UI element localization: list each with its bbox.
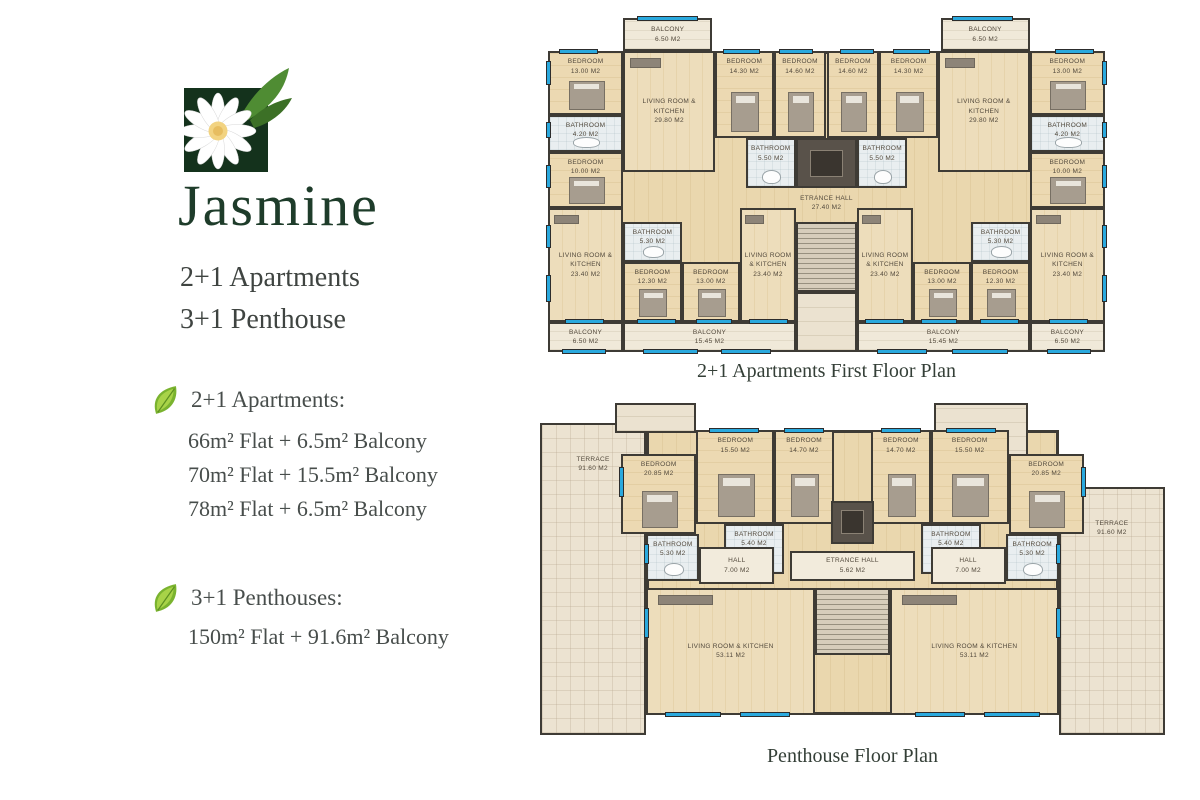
room-label: BALCONY6.50 M2 (650, 22, 685, 47)
room-label: BEDROOM20.85 M2 (1011, 457, 1082, 482)
bedroom-room: BEDROOM14.70 M2 (774, 430, 833, 524)
spec-item: 78m² Flat + 6.5m² Balcony (188, 492, 438, 526)
balcony-room: BALCONY15.45 M2 (857, 322, 1030, 352)
window (1049, 319, 1088, 324)
balcony-room: BALCONY6.50 M2 (1030, 322, 1105, 352)
room-label: BATHROOM5.40 M2 (923, 527, 978, 552)
living-room-kitchen-room: LIVING ROOM & KITCHEN29.80 M2 (623, 51, 715, 171)
room-label: LIVING ROOM & KITCHEN23.40 M2 (1032, 248, 1103, 282)
window (921, 319, 957, 324)
window (644, 608, 650, 638)
room-label: LIVING ROOM & KITCHEN23.40 M2 (742, 248, 794, 282)
bed-furniture (987, 289, 1015, 317)
bed-furniture (698, 289, 726, 317)
bedroom-room: BEDROOM13.00 M2 (1030, 51, 1105, 114)
window (644, 544, 650, 564)
window (637, 319, 676, 324)
living-room-kitchen-room: LIVING ROOM & KITCHEN29.80 M2 (938, 51, 1030, 171)
window (779, 49, 812, 54)
room-label: LIVING ROOM & KITCHEN29.80 M2 (625, 94, 713, 128)
room-label: LIVING ROOM & KITCHEN53.11 M2 (687, 639, 775, 664)
window (643, 349, 699, 354)
window (696, 319, 732, 324)
brand-subtitle-penthouse: 3+1 Penthouse (180, 304, 346, 336)
spec-heading-apartments-label: 2+1 Apartments: (191, 387, 345, 413)
window (865, 319, 904, 324)
bath-fixture (664, 563, 684, 576)
window (984, 712, 1040, 717)
room-label: BEDROOM10.00 M2 (550, 155, 621, 180)
room-label: LIVING ROOM & KITCHEN29.80 M2 (940, 94, 1028, 128)
window (1056, 608, 1062, 638)
room-label: BEDROOM20.85 M2 (623, 457, 694, 482)
room-label: BATHROOM5.50 M2 (748, 141, 794, 166)
room-label: BATHROOM5.30 M2 (625, 225, 679, 250)
room-label: BATHROOM5.50 M2 (859, 141, 905, 166)
window (721, 349, 771, 354)
brand-name: Jasmine (178, 172, 379, 239)
bed-furniture (642, 491, 678, 528)
room-label: BEDROOM14.30 M2 (717, 54, 771, 79)
bed-furniture (569, 81, 605, 110)
room-label: TERRACE91.60 M2 (576, 452, 611, 477)
bedroom-room: BEDROOM10.00 M2 (548, 152, 623, 209)
bathroom-room: BATHROOM5.30 M2 (971, 222, 1029, 262)
spec-heading-apartments: 2+1 Apartments: (150, 386, 345, 414)
bedroom-room: BEDROOM15.50 M2 (931, 430, 1009, 524)
balcony-room: BALCONY6.50 M2 (548, 322, 623, 352)
bed-furniture (639, 289, 667, 317)
bath-fixture (874, 170, 893, 184)
bedroom-room: BEDROOM14.30 M2 (879, 51, 937, 138)
bed-furniture (718, 474, 756, 517)
bed-furniture (569, 177, 605, 203)
window (1047, 349, 1092, 354)
room-label: BATHROOM5.30 M2 (973, 225, 1027, 250)
window (562, 349, 607, 354)
room-label: BEDROOM15.50 M2 (698, 433, 772, 458)
room-label: BALCONY6.50 M2 (968, 22, 1003, 47)
window (915, 712, 965, 717)
room-label: BATHROOM4.20 M2 (550, 118, 621, 143)
room-label: LIVING ROOM & KITCHEN23.40 M2 (859, 248, 911, 282)
elevator-room (796, 138, 857, 188)
room-label: BALCONY6.50 M2 (1050, 325, 1085, 350)
spec-item: 70m² Flat + 15.5m² Balcony (188, 458, 438, 492)
window (840, 49, 873, 54)
bedroom-room: BEDROOM15.50 M2 (696, 430, 774, 524)
penthouse-plan: TERRACE91.60 M2TERRACE91.60 M2BEDROOM20.… (540, 400, 1165, 735)
room-label: BEDROOM12.30 M2 (625, 265, 679, 290)
window (546, 225, 551, 248)
room-label: BEDROOM14.60 M2 (829, 54, 878, 79)
bedroom-room: BEDROOM10.00 M2 (1030, 152, 1105, 209)
spec-heading-penthouses: 3+1 Penthouses: (150, 584, 343, 612)
daisy-logo-icon (184, 62, 296, 174)
room-label: BEDROOM10.00 M2 (1032, 155, 1103, 180)
bed-furniture (731, 92, 759, 132)
spec-item: 66m² Flat + 6.5m² Balcony (188, 424, 438, 458)
living-room-kitchen-room: LIVING ROOM & KITCHEN23.40 M2 (857, 208, 913, 322)
window (546, 61, 551, 84)
window (881, 428, 922, 433)
window (559, 49, 598, 54)
bedroom-room: BEDROOM20.85 M2 (621, 454, 696, 534)
window (665, 712, 721, 717)
living-room-kitchen-room: LIVING ROOM & KITCHEN23.40 M2 (740, 208, 796, 322)
leaf-icon (147, 383, 185, 418)
window (946, 428, 996, 433)
window (619, 467, 625, 497)
bed-furniture (896, 92, 924, 132)
bedroom-room: BEDROOM20.85 M2 (1009, 454, 1084, 534)
room-label: TERRACE91.60 M2 (1094, 516, 1129, 541)
room-label: BEDROOM15.50 M2 (933, 433, 1007, 458)
bed-furniture (929, 289, 957, 317)
first-floor-plan: BALCONY6.50 M2BALCONY6.50 M2BEDROOM13.00… (548, 18, 1105, 352)
room-label: BALCONY6.50 M2 (568, 325, 603, 350)
bedroom-room: BEDROOM13.00 M2 (913, 262, 971, 322)
room-label: BEDROOM14.70 M2 (776, 433, 831, 458)
room-label: LIVING ROOM & KITCHEN53.11 M2 (930, 639, 1018, 664)
window (784, 428, 825, 433)
window (1055, 49, 1094, 54)
window (1056, 544, 1062, 564)
room-label: BATHROOM5.30 M2 (1008, 537, 1057, 562)
window (637, 16, 698, 21)
bedroom-room: BEDROOM13.00 M2 (682, 262, 740, 322)
window (749, 319, 788, 324)
bed-furniture (788, 92, 813, 132)
balcony-room: BALCONY15.45 M2 (623, 322, 796, 352)
window (1102, 61, 1107, 84)
bed-furniture (791, 474, 820, 517)
brochure-page: Jasmine 2+1 Apartments 3+1 Penthouse 2+1… (0, 0, 1200, 800)
bathroom-room: BATHROOM5.30 M2 (1006, 534, 1059, 581)
balcony-room: BALCONY6.50 M2 (941, 18, 1030, 51)
bedroom-room: BEDROOM13.00 M2 (548, 51, 623, 114)
living-room-kitchen-room: LIVING ROOM & KITCHEN23.40 M2 (1030, 208, 1105, 322)
bedroom-room: BEDROOM14.30 M2 (715, 51, 773, 138)
window (740, 712, 790, 717)
room-label: LIVING ROOM & KITCHEN23.40 M2 (550, 248, 621, 282)
spec-heading-penthouses-label: 3+1 Penthouses: (191, 585, 343, 611)
window (1102, 122, 1107, 139)
bathroom-room: BATHROOM5.50 M2 (746, 138, 796, 188)
window (709, 428, 759, 433)
window (893, 49, 929, 54)
room-label: HALL7.00 M2 (723, 553, 751, 578)
etrance-hall-room: ETRANCE HALL5.62 M2 (790, 551, 915, 581)
room-label: BEDROOM14.30 M2 (881, 54, 935, 79)
bathroom-room: BATHROOM4.20 M2 (1030, 115, 1105, 152)
spec-items-penthouses: 150m² Flat + 91.6m² Balcony (188, 620, 449, 654)
spec-item: 150m² Flat + 91.6m² Balcony (188, 620, 449, 654)
room-label: BEDROOM13.00 M2 (915, 265, 969, 290)
window (1102, 165, 1107, 188)
leaf-icon (147, 581, 185, 616)
window (546, 165, 551, 188)
living-room-kitchen-room: LIVING ROOM & KITCHEN53.11 M2 (890, 588, 1059, 715)
window (546, 122, 551, 139)
block-room (615, 403, 696, 433)
window (1102, 275, 1107, 302)
living-room-kitchen-room: LIVING ROOM & KITCHEN23.40 M2 (548, 208, 623, 322)
stairs-room (796, 222, 857, 292)
bed-furniture (1029, 491, 1065, 528)
bathroom-room: BATHROOM5.30 M2 (623, 222, 681, 262)
bedroom-room: BEDROOM14.70 M2 (871, 430, 930, 524)
room-label: BATHROOM4.20 M2 (1032, 118, 1103, 143)
bath-fixture (762, 170, 781, 184)
room-label: BEDROOM13.00 M2 (550, 54, 621, 79)
room-label: BATHROOM5.30 M2 (648, 537, 697, 562)
bedroom-room: BEDROOM14.60 M2 (774, 51, 827, 138)
room-label: HALL7.00 M2 (954, 553, 982, 578)
stairs-room (815, 588, 890, 655)
bed-furniture (1050, 81, 1086, 110)
bath-fixture (1023, 563, 1043, 576)
bed-furniture (841, 92, 866, 132)
room-label: BATHROOM5.40 M2 (726, 527, 781, 552)
window (1081, 467, 1087, 497)
window (952, 16, 1013, 21)
bed-furniture (952, 474, 990, 517)
hall-room: HALL7.00 M2 (699, 547, 774, 584)
window (980, 319, 1019, 324)
bedroom-room: BEDROOM14.60 M2 (827, 51, 880, 138)
penthouse-plan-caption: Penthouse Floor Plan (540, 745, 1165, 768)
bathroom-room: BATHROOM5.50 M2 (857, 138, 907, 188)
bathroom-room: BATHROOM4.20 M2 (548, 115, 623, 152)
bed-furniture (888, 474, 917, 517)
room-label: BEDROOM13.00 M2 (1032, 54, 1103, 79)
balcony-room: BALCONY6.50 M2 (623, 18, 712, 51)
window (1102, 225, 1107, 248)
hall-room: HALL7.00 M2 (931, 547, 1006, 584)
room-label: BEDROOM14.60 M2 (776, 54, 825, 79)
bathroom-room: BATHROOM5.30 M2 (646, 534, 699, 581)
room-label: BEDROOM13.00 M2 (684, 265, 738, 290)
room-label: BALCONY15.45 M2 (692, 325, 727, 350)
room-label: ETRANCE HALL27.40 M2 (799, 191, 854, 216)
bedroom-room: BEDROOM12.30 M2 (971, 262, 1029, 322)
window (546, 275, 551, 302)
spec-items-apartments: 66m² Flat + 6.5m² Balcony 70m² Flat + 15… (188, 424, 438, 526)
first-floor-plan-caption: 2+1 Apartments First Floor Plan (548, 360, 1105, 383)
block-room (796, 292, 857, 352)
brand-subtitle-apartments: 2+1 Apartments (180, 262, 360, 294)
living-room-kitchen-room: LIVING ROOM & KITCHEN53.11 M2 (646, 588, 815, 715)
window (723, 49, 759, 54)
room-label: BEDROOM14.70 M2 (873, 433, 928, 458)
window (952, 349, 1008, 354)
bed-furniture (1050, 177, 1086, 203)
room-label: BEDROOM12.30 M2 (973, 265, 1027, 290)
room-label: BALCONY15.45 M2 (926, 325, 961, 350)
room-label: ETRANCE HALL5.62 M2 (825, 553, 880, 578)
window (877, 349, 927, 354)
bedroom-room: BEDROOM12.30 M2 (623, 262, 681, 322)
window (565, 319, 604, 324)
elevator-room (831, 501, 875, 545)
